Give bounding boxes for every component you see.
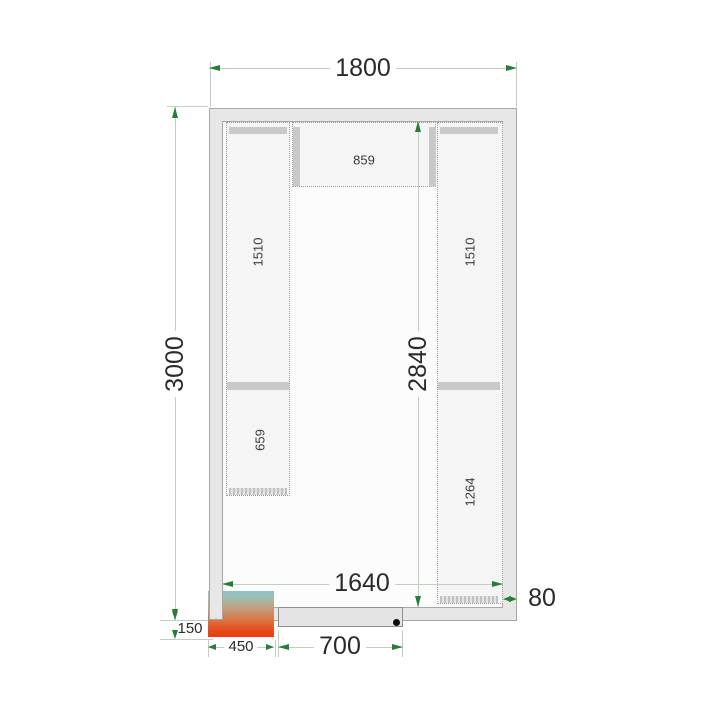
arrowhead-left-icon [208,644,216,650]
arrowhead-right-icon [266,644,274,650]
dim-wall-thickness-label: 80 [528,585,556,611]
arrowhead-left-icon [209,65,220,71]
shelf-top-label: 859 [353,153,375,168]
arrowhead-down-icon [172,611,178,620]
shelf-left-lower-label: 659 [253,429,268,451]
arrowhead-up-icon [415,121,421,132]
shelf-left-end-cap [229,488,287,495]
shelf-top-left-cap [293,127,300,186]
dim-unit-width-ext-right [275,640,276,657]
dim-inner-height-label: 2840 [405,331,431,397]
shelf-left-top-bar [229,127,287,134]
shelf-right-top-bar [440,127,498,134]
shelf-right-lower-label: 1264 [463,478,478,507]
arrowhead-left-icon [278,644,289,650]
left-wall-over-unit [209,555,223,620]
floor-plan: 859 1510 659 1510 1264 1800 3000 2840 16… [0,0,720,720]
shelf-right-end-cap [440,596,498,603]
shelf-right-upper-label: 1510 [463,238,478,267]
shelf-left-upper-label: 1510 [251,238,266,267]
shelf-top-right-cap [429,127,436,186]
door-handle-dot [393,619,400,626]
arrowhead-right-icon [492,581,503,587]
shelf-right-divider-bar [438,382,500,390]
arrowhead-right-icon [392,644,403,650]
dim-outer-height-label: 3000 [162,331,188,397]
dim-unit-width-label: 450 [224,639,257,655]
arrowhead-down-icon [415,596,421,607]
arrowhead-up-icon [172,107,178,118]
dim-outer-width-label: 1800 [330,55,396,81]
dim-door-width-label: 700 [314,633,366,659]
shelf-left-divider-bar [227,382,289,390]
dim-unit-protrusion-ext-bottom [160,639,213,640]
dim-inner-width-label: 1640 [329,570,395,596]
door-panel [278,607,403,627]
dim-unit-protrusion-label: 150 [177,621,202,637]
arrowhead-right-icon [506,65,517,71]
arrowhead-left-icon [222,581,233,587]
arrowhead-right-icon [509,596,517,602]
shelf-right [437,122,503,604]
